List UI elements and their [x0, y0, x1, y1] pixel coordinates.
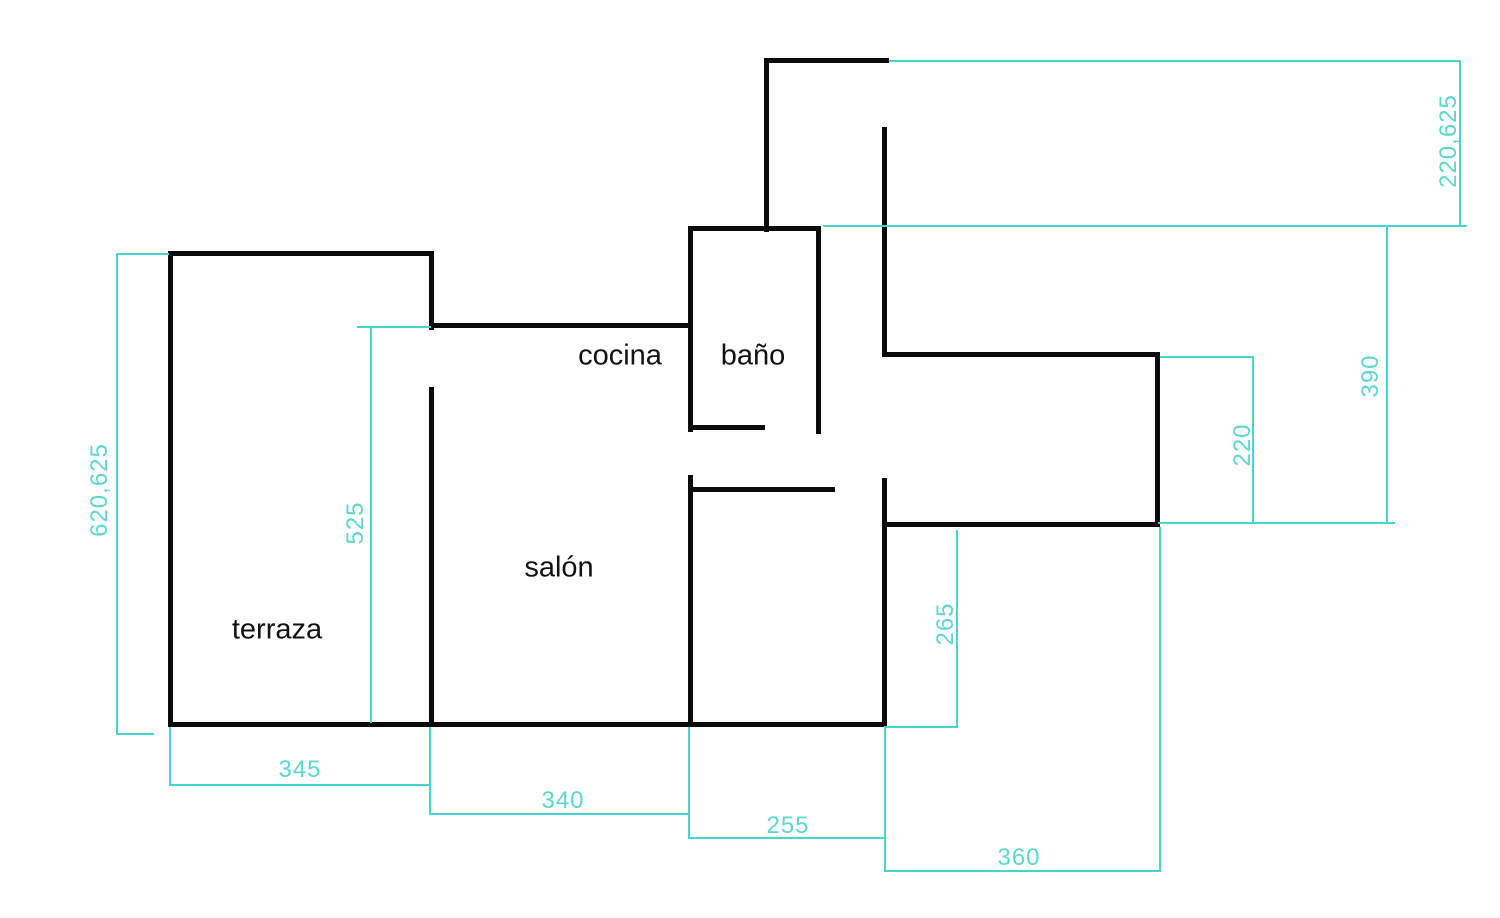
wall-segment — [816, 226, 821, 434]
wall-segment — [1155, 352, 1160, 527]
wall-segment — [429, 251, 434, 330]
wall-segment — [429, 387, 434, 727]
dimension-line — [429, 727, 431, 786]
room-label-terraza: terraza — [232, 614, 322, 647]
room-label-bano: baño — [721, 340, 786, 373]
dimension-line — [1159, 527, 1161, 872]
wall-segment — [168, 251, 173, 727]
wall-segment — [764, 58, 769, 232]
dimension-line — [370, 326, 372, 723]
wall-segment — [168, 251, 434, 256]
room-label-salon: salón — [524, 552, 593, 585]
wall-segment — [688, 425, 765, 430]
dimension-label-265: 265 — [932, 602, 960, 645]
wall-segment — [429, 323, 693, 328]
dimension-label-360: 360 — [997, 844, 1040, 872]
room-label-cocina: cocina — [578, 340, 662, 373]
dimension-label-340: 340 — [541, 787, 584, 815]
dimension-line — [169, 727, 171, 786]
dimension-line — [116, 253, 169, 255]
dimension-line — [357, 326, 431, 328]
wall-segment — [882, 352, 1160, 357]
wall-segment — [168, 722, 887, 727]
dimension-line — [889, 60, 1461, 62]
dimension-line — [688, 727, 690, 839]
dimension-line — [429, 784, 431, 815]
wall-segment — [882, 522, 1160, 527]
dimension-line — [169, 784, 431, 786]
dimension-label-220: 220 — [1229, 423, 1257, 466]
dimension-label-390: 390 — [1357, 354, 1385, 397]
dimension-line — [116, 733, 154, 735]
dimension-line — [823, 225, 1467, 227]
wall-segment — [688, 487, 835, 492]
dimension-label-620-625: 620,625 — [86, 443, 114, 537]
wall-segment — [764, 58, 889, 63]
dimension-line — [116, 253, 118, 735]
wall-segment — [688, 226, 693, 432]
dimension-label-525: 525 — [342, 501, 370, 544]
dimension-line — [884, 726, 958, 728]
wall-segment — [688, 226, 821, 231]
wall-segment — [882, 127, 887, 357]
dimension-label-345: 345 — [278, 756, 321, 784]
floor-plan-canvas: cocina baño salón terraza 220,6253902206… — [0, 0, 1500, 918]
dimension-line — [1160, 356, 1254, 358]
wall-segment — [882, 478, 887, 727]
wall-segment — [688, 475, 693, 727]
dimension-label-220-625: 220,625 — [1435, 94, 1463, 188]
dimension-line — [884, 727, 886, 872]
dimension-line — [1386, 226, 1388, 524]
dimension-line — [1158, 522, 1395, 524]
dimension-label-255: 255 — [766, 812, 809, 840]
